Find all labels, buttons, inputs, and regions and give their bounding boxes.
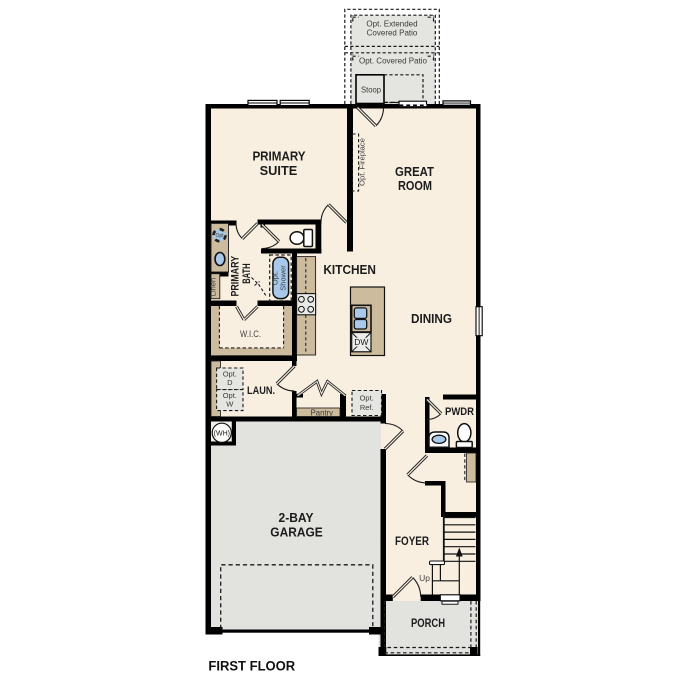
- svg-text:2-BAY: 2-BAY: [279, 511, 315, 525]
- svg-text:Shower: Shower: [279, 265, 288, 291]
- svg-text:PWDR: PWDR: [445, 406, 474, 418]
- svg-text:PORCH: PORCH: [411, 616, 445, 630]
- svg-text:GREAT: GREAT: [395, 165, 434, 179]
- svg-text:PRIMARY: PRIMARY: [230, 255, 242, 296]
- svg-text:Opt. Fireplace: Opt. Fireplace: [358, 138, 367, 186]
- svg-text:PRIMARY: PRIMARY: [252, 150, 306, 164]
- svg-text:Linen: Linen: [209, 278, 218, 296]
- svg-text:D: D: [227, 378, 233, 387]
- svg-text:Stoop: Stoop: [361, 86, 382, 95]
- svg-text:DW: DW: [354, 337, 368, 347]
- svg-text:Pantry: Pantry: [311, 407, 334, 417]
- svg-text:Opt.: Opt.: [360, 394, 374, 403]
- svg-text:FIRST FLOOR: FIRST FLOOR: [208, 659, 295, 674]
- svg-text:Ref.: Ref.: [360, 403, 374, 412]
- svg-text:GARAGE: GARAGE: [270, 526, 322, 540]
- svg-text:KITCHEN: KITCHEN: [323, 263, 376, 277]
- svg-text:W.I.C.: W.I.C.: [240, 329, 261, 339]
- svg-text:Covered Patio: Covered Patio: [367, 29, 418, 38]
- svg-text:ROOM: ROOM: [398, 179, 432, 193]
- svg-text:BATH: BATH: [241, 263, 253, 283]
- svg-text:(WH): (WH): [214, 431, 230, 438]
- svg-text:DINING: DINING: [411, 312, 452, 326]
- svg-text:FOYER: FOYER: [395, 536, 430, 548]
- svg-text:Opt. Covered Patio: Opt. Covered Patio: [359, 57, 428, 66]
- svg-text:SUITE: SUITE: [260, 164, 298, 178]
- svg-text:Opt: Opt: [215, 233, 224, 239]
- svg-text:LAUN.: LAUN.: [247, 385, 275, 397]
- svg-text:Opt. Extended: Opt. Extended: [366, 20, 417, 29]
- svg-text:Up: Up: [419, 573, 430, 583]
- svg-text:W: W: [226, 400, 234, 409]
